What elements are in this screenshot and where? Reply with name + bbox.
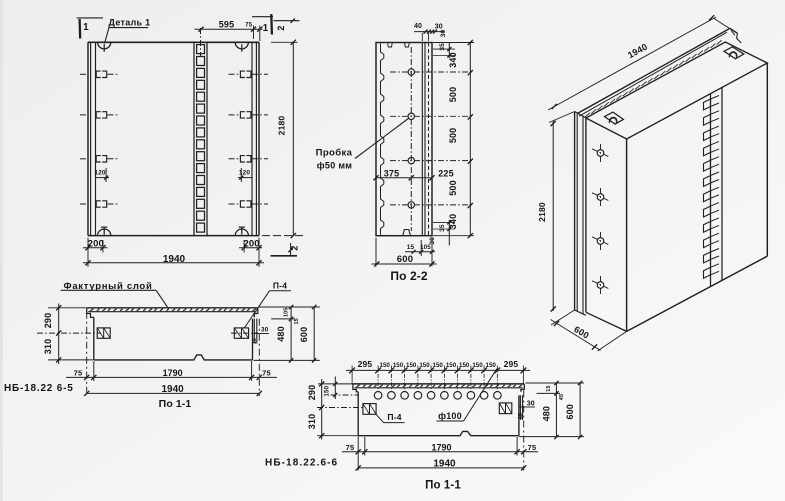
- svg-text:30: 30: [261, 327, 269, 334]
- svg-text:НБ-18.22 6-5: НБ-18.22 6-5: [4, 383, 74, 394]
- svg-text:500: 500: [448, 128, 458, 143]
- svg-text:30: 30: [440, 30, 447, 38]
- svg-text:600: 600: [299, 327, 309, 342]
- svg-text:По 2-2: По 2-2: [390, 269, 427, 283]
- svg-text:200: 200: [88, 239, 104, 250]
- svg-text:75: 75: [262, 369, 271, 378]
- svg-text:150: 150: [472, 362, 483, 369]
- svg-text:2: 2: [276, 25, 286, 30]
- svg-text:1790: 1790: [431, 442, 451, 452]
- svg-text:ф50 мм: ф50 мм: [317, 161, 353, 171]
- svg-text:45: 45: [559, 394, 565, 400]
- svg-text:480: 480: [276, 326, 286, 341]
- svg-text:Деталь 1: Деталь 1: [109, 18, 151, 28]
- svg-text:15: 15: [407, 244, 415, 251]
- svg-text:1: 1: [83, 22, 89, 33]
- svg-text:290: 290: [307, 385, 317, 400]
- svg-text:75: 75: [528, 443, 537, 452]
- svg-text:150: 150: [393, 362, 404, 369]
- svg-text:По 1-1: По 1-1: [159, 398, 192, 410]
- svg-text:295: 295: [358, 359, 373, 369]
- svg-text:75: 75: [74, 369, 83, 378]
- svg-text:225: 225: [438, 168, 453, 178]
- svg-text:1790: 1790: [163, 368, 183, 378]
- svg-text:120: 120: [94, 170, 106, 177]
- svg-text:15: 15: [294, 318, 300, 324]
- svg-text:35: 35: [439, 43, 446, 51]
- svg-text:150: 150: [406, 362, 417, 369]
- svg-text:По 1-1: По 1-1: [425, 480, 461, 492]
- svg-text:290: 290: [43, 313, 53, 328]
- svg-text:35: 35: [518, 413, 524, 419]
- svg-text:1940: 1940: [163, 254, 186, 265]
- svg-text:310: 310: [43, 339, 53, 354]
- svg-text:200: 200: [243, 239, 259, 250]
- svg-text:40: 40: [414, 23, 422, 30]
- svg-text:150: 150: [459, 362, 470, 369]
- svg-text:15: 15: [546, 385, 552, 391]
- svg-text:2180: 2180: [277, 116, 287, 136]
- svg-text:75: 75: [346, 443, 355, 452]
- svg-text:500: 500: [448, 87, 458, 102]
- svg-text:35: 35: [439, 224, 446, 232]
- svg-text:2: 2: [290, 245, 300, 250]
- svg-text:15: 15: [252, 338, 258, 344]
- svg-text:1940: 1940: [433, 459, 456, 470]
- svg-text:Пробка: Пробка: [316, 148, 353, 159]
- svg-text:310: 310: [307, 414, 317, 429]
- svg-text:600: 600: [565, 404, 575, 419]
- svg-text:120: 120: [239, 170, 251, 177]
- svg-text:30: 30: [435, 24, 443, 31]
- svg-text:500: 500: [448, 180, 458, 195]
- svg-text:150: 150: [323, 385, 330, 396]
- svg-text:375: 375: [384, 168, 399, 178]
- svg-text:150: 150: [433, 362, 444, 369]
- svg-text:480: 480: [542, 406, 552, 421]
- svg-text:295: 295: [504, 359, 519, 369]
- svg-text:600: 600: [397, 254, 413, 265]
- svg-text:П-4: П-4: [273, 281, 287, 291]
- svg-text:105: 105: [283, 307, 289, 317]
- svg-text:150: 150: [380, 362, 391, 369]
- svg-text:1: 1: [263, 23, 269, 34]
- svg-text:2180: 2180: [537, 202, 547, 222]
- svg-text:ф100: ф100: [438, 411, 462, 421]
- svg-text:30: 30: [527, 401, 535, 408]
- svg-text:595: 595: [219, 19, 234, 29]
- svg-text:150: 150: [486, 362, 497, 369]
- svg-text:150: 150: [419, 362, 430, 369]
- svg-text:75: 75: [245, 23, 252, 29]
- svg-text:1940: 1940: [161, 384, 184, 395]
- svg-text:П-4: П-4: [387, 412, 401, 422]
- svg-text:НБ-18.22.6-6: НБ-18.22.6-6: [265, 458, 338, 469]
- svg-text:150: 150: [446, 362, 457, 369]
